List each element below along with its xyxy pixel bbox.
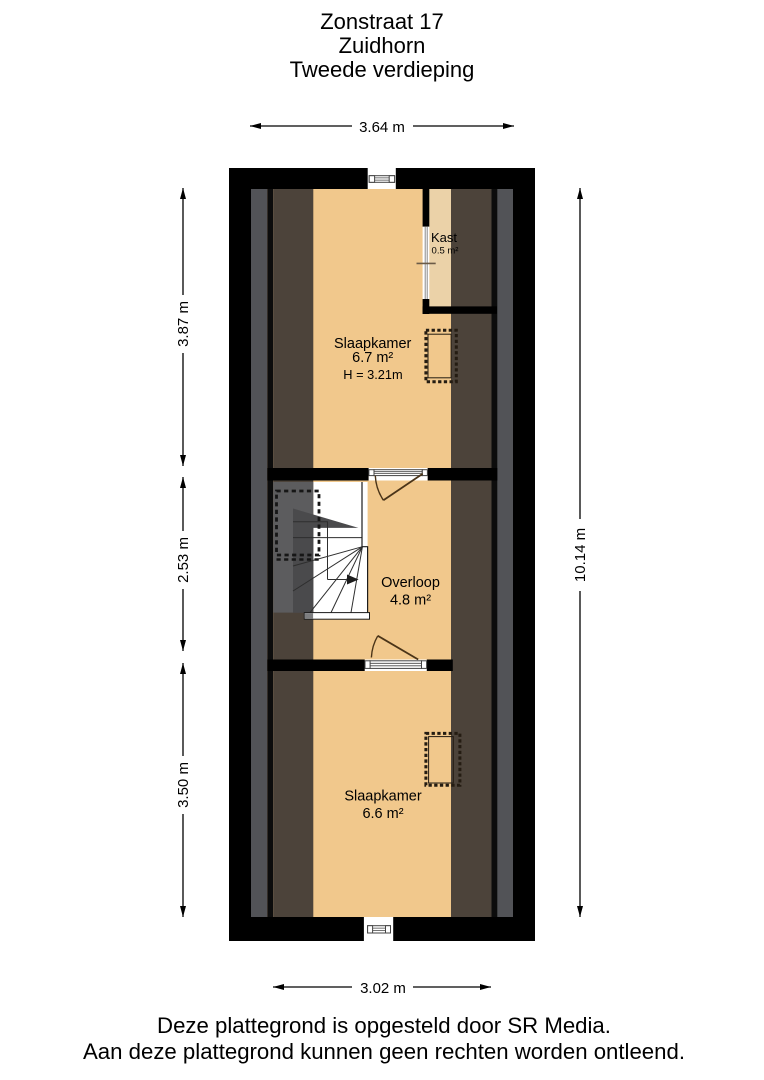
svg-text:3.87 m: 3.87 m — [175, 301, 192, 347]
svg-text:Deze plattegrond is opgesteld: Deze plattegrond is opgesteld door SR Me… — [157, 1013, 611, 1038]
svg-text:Kast: Kast — [431, 230, 457, 245]
svg-text:3.50 m: 3.50 m — [175, 762, 192, 808]
svg-text:H = 3.21m: H = 3.21m — [343, 367, 402, 382]
svg-text:Slaapkamer: Slaapkamer — [344, 789, 422, 805]
svg-text:3.64 m: 3.64 m — [359, 119, 405, 136]
svg-text:Zonstraat 17: Zonstraat 17 — [320, 9, 444, 34]
svg-text:0.5 m²: 0.5 m² — [432, 246, 459, 257]
svg-text:6.6 m²: 6.6 m² — [362, 806, 403, 822]
svg-text:3.02 m: 3.02 m — [360, 980, 406, 997]
svg-text:2.53 m: 2.53 m — [175, 537, 192, 583]
svg-text:Aan deze plattegrond kunnen ge: Aan deze plattegrond kunnen geen rechten… — [83, 1039, 685, 1064]
svg-text:Overloop: Overloop — [381, 575, 440, 591]
svg-text:6.7 m²: 6.7 m² — [352, 350, 393, 366]
svg-text:Zuidhorn: Zuidhorn — [339, 33, 426, 58]
svg-text:4.8 m²: 4.8 m² — [390, 593, 431, 609]
svg-text:10.14 m: 10.14 m — [572, 528, 589, 582]
svg-text:Tweede verdieping: Tweede verdieping — [290, 57, 475, 82]
